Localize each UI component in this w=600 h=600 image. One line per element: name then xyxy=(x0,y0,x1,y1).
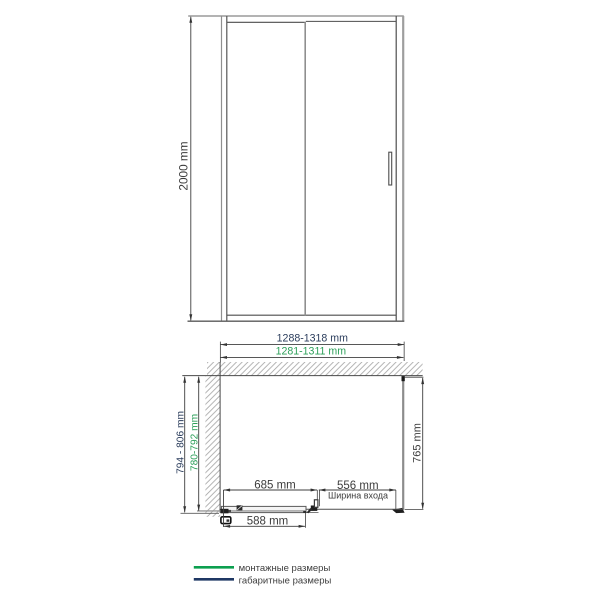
svg-text:Ширина входа: Ширина входа xyxy=(328,491,388,501)
svg-text:монтажные размеры: монтажные размеры xyxy=(239,563,331,574)
svg-text:780-792 mm: 780-792 mm xyxy=(189,414,200,471)
svg-text:765 mm: 765 mm xyxy=(412,423,424,463)
svg-text:2000 mm: 2000 mm xyxy=(177,141,191,190)
svg-text:794 - 806 mm: 794 - 806 mm xyxy=(175,411,186,474)
svg-text:габаритные размеры: габаритные размеры xyxy=(239,575,332,586)
svg-text:1288-1318 mm: 1288-1318 mm xyxy=(277,333,348,345)
svg-text:1281-1311 mm: 1281-1311 mm xyxy=(276,346,347,358)
svg-text:588 mm: 588 mm xyxy=(247,515,289,527)
